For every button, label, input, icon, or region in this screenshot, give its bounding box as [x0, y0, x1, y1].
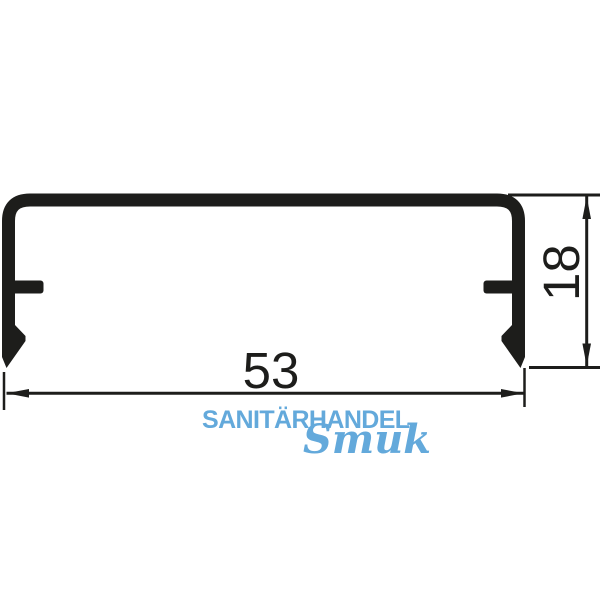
width-arrow-right [501, 389, 524, 398]
profile-left-foot [2, 318, 26, 368]
watermark: SANITÄRHANDEL Smuk [202, 406, 431, 463]
profile-right-foot [502, 318, 526, 368]
width-dimension: 53 [4, 342, 525, 410]
height-arrow-top [582, 197, 591, 220]
width-arrow-left [7, 389, 30, 398]
width-dimension-label: 53 [243, 342, 300, 399]
profile-drawing: 53 18 SANITÄRHANDEL Smuk [0, 0, 600, 600]
profile-body-outline [9, 200, 519, 330]
height-dimension-label: 18 [533, 244, 590, 301]
profile-right-tab [484, 281, 518, 294]
profile-left-tab [10, 281, 44, 294]
watermark-logo-script: Smuk [303, 416, 431, 463]
height-arrow-bottom [582, 344, 591, 367]
technical-drawing-canvas: 53 18 SANITÄRHANDEL Smuk [0, 0, 600, 600]
